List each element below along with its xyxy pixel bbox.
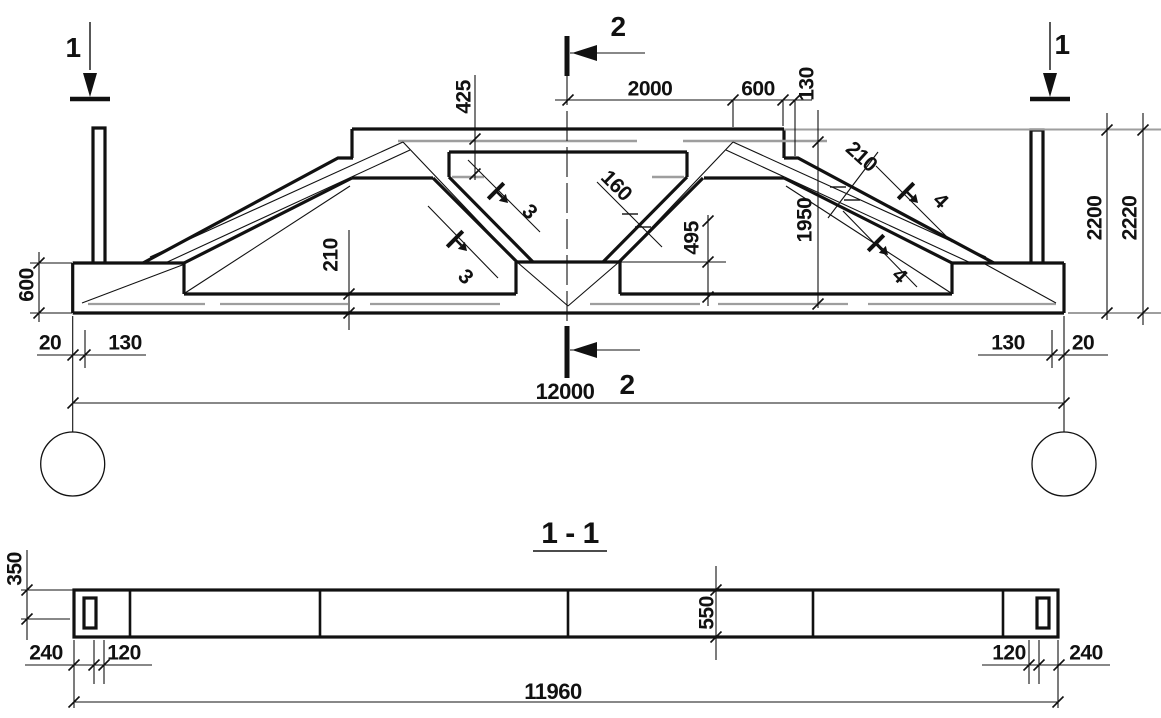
dim-12000: 12000	[536, 379, 595, 404]
dim-20-right: 20	[1072, 332, 1094, 355]
arrow-left-icon	[572, 342, 597, 358]
dim-2220: 2220	[1119, 196, 1142, 241]
hole-left	[84, 598, 96, 628]
cut-line-1	[90, 22, 1050, 70]
dim-210-left: 210	[320, 238, 343, 272]
dim-2000: 2000	[628, 78, 673, 101]
dim-160: 160	[596, 166, 636, 206]
labels: 1 - 1 1122425200060013016021019504952106…	[4, 11, 1142, 704]
grid-bubbles	[41, 432, 1096, 496]
dim-425: 425	[453, 79, 476, 113]
dim-350: 350	[4, 552, 27, 586]
arrow-down-icon	[1043, 73, 1057, 97]
section-mark-2-top: 2	[610, 11, 625, 42]
cut-flag-4-lower	[868, 235, 896, 263]
section-mark-4-lower: 4	[887, 264, 912, 289]
hole-right	[1037, 598, 1049, 628]
arrow-down-icon	[83, 73, 97, 97]
dowel-bar-right	[1031, 130, 1043, 263]
drawing-canvas: 1 - 1 1122425200060013016021019504952106…	[0, 0, 1161, 718]
dim-600-left: 600	[16, 268, 39, 302]
dim-600-top: 600	[741, 78, 775, 101]
dim-20-left: 20	[39, 332, 61, 355]
dim-120-right: 120	[992, 642, 1026, 665]
dim-1950: 1950	[794, 198, 817, 243]
section-mark-1-left: 1	[65, 32, 80, 63]
section-title: 1 - 1	[541, 517, 599, 550]
rebar-gray-lines	[88, 130, 1161, 314]
dim-495: 495	[681, 220, 704, 254]
dim-120-left: 120	[107, 642, 141, 665]
grid-bubble-left	[41, 432, 105, 496]
section-mark-2-bottom: 2	[619, 369, 634, 400]
cut-flag-4-upper	[898, 183, 926, 211]
section-mark-4-upper: 4	[928, 189, 953, 214]
section-trace-lines	[428, 152, 952, 287]
cut-flag-3-upper	[488, 183, 516, 211]
dim-2200: 2200	[1084, 196, 1107, 241]
section-mark-1-right: 1	[1054, 29, 1069, 60]
arrow-left-icon	[572, 45, 597, 61]
grid-bubble-right	[1032, 432, 1096, 496]
member-cut-lines	[130, 590, 1003, 637]
dim-130-top: 130	[796, 67, 819, 101]
truss-drawing: 1 - 1 1122425200060013016021019504952106…	[0, 0, 1161, 718]
dim-210-right: 210	[841, 137, 881, 177]
dim-550: 550	[696, 596, 719, 630]
dim-130-botleft: 130	[108, 332, 142, 355]
section-mark-3-lower: 3	[453, 265, 477, 289]
reinforcement-lines	[82, 142, 1056, 306]
cut-flag-3-lower	[447, 231, 475, 259]
section-mark-3-upper: 3	[517, 200, 541, 224]
section-outline	[74, 590, 1058, 637]
dowel-bar-left	[93, 128, 105, 263]
dim-240-left: 240	[29, 642, 63, 665]
dim-11960: 11960	[524, 679, 582, 704]
elevation-view	[30, 22, 1161, 496]
section-markers	[70, 22, 1070, 378]
dim-240-right: 240	[1069, 642, 1103, 665]
dim-130-botright: 130	[991, 332, 1025, 355]
